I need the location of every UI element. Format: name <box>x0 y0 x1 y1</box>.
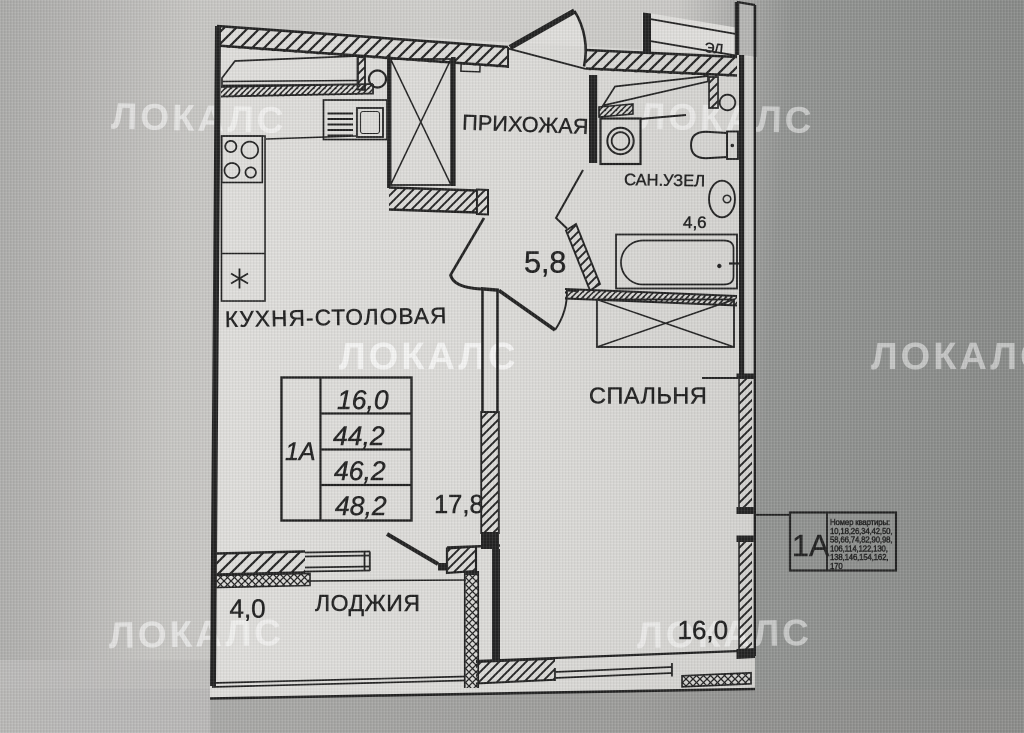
svg-text:44,2: 44,2 <box>333 421 385 451</box>
svg-text:ЛОКАЛС: ЛОКАЛС <box>871 336 1024 378</box>
svg-text:КУХНЯ-СТОЛОВАЯ: КУХНЯ-СТОЛОВАЯ <box>225 303 448 332</box>
svg-text:ЭЛ: ЭЛ <box>704 39 724 57</box>
svg-text:58,66,74,82,90,98,: 58,66,74,82,90,98, <box>830 536 892 545</box>
svg-text:138,146,154,162,: 138,146,154,162, <box>830 553 888 562</box>
svg-text:5,8: 5,8 <box>524 246 566 280</box>
svg-text:Номер квартиры:: Номер квартиры: <box>830 518 890 527</box>
svg-text:1А: 1А <box>285 438 316 466</box>
svg-text:ЛОКАЛС: ЛОКАЛС <box>111 96 287 142</box>
svg-text:106,114,122,130,: 106,114,122,130, <box>830 544 888 553</box>
svg-text:САН.УЗЕЛ: САН.УЗЕЛ <box>624 171 705 190</box>
svg-text:10,18,26,34,42,50,: 10,18,26,34,42,50, <box>830 527 892 536</box>
svg-text:ЛОДЖИЯ: ЛОДЖИЯ <box>315 590 420 616</box>
svg-text:170: 170 <box>830 562 843 571</box>
svg-text:16,0: 16,0 <box>337 385 389 415</box>
svg-text:4,0: 4,0 <box>230 594 266 624</box>
svg-text:46,2: 46,2 <box>334 456 386 486</box>
svg-text:ЛОКАЛС: ЛОКАЛС <box>339 336 518 378</box>
svg-text:17,8: 17,8 <box>434 491 484 519</box>
svg-text:48,2: 48,2 <box>335 491 387 521</box>
svg-text:СПАЛЬНЯ: СПАЛЬНЯ <box>589 383 707 409</box>
svg-text:ПРИХОЖАЯ: ПРИХОЖАЯ <box>462 111 589 139</box>
svg-text:4,6: 4,6 <box>683 213 707 232</box>
svg-text:16,0: 16,0 <box>678 615 729 645</box>
svg-text:1А: 1А <box>792 529 830 563</box>
